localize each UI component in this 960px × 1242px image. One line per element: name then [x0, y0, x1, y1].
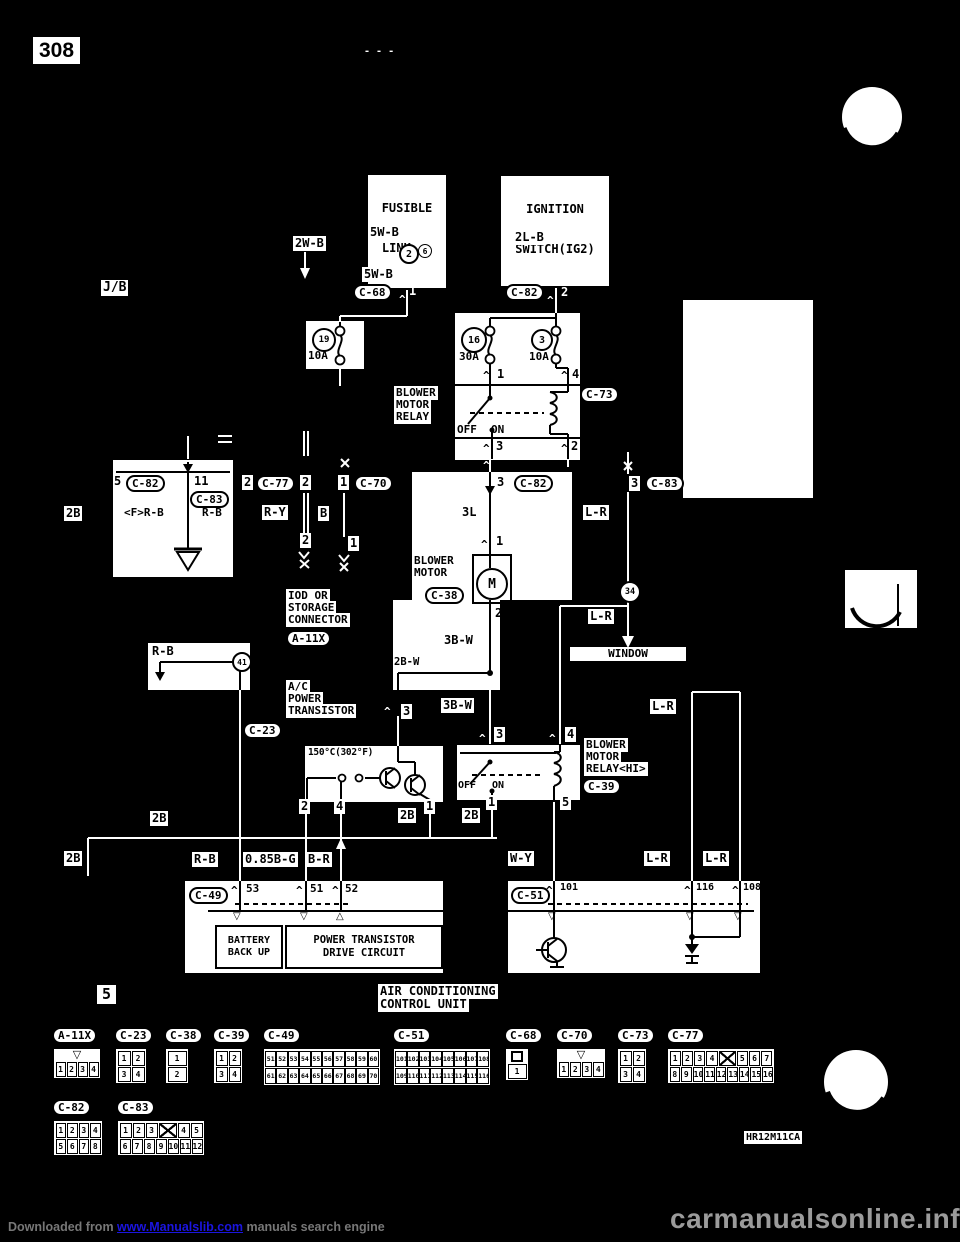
pin-chevron-icon: ^ — [483, 461, 490, 470]
pin-chevron-icon: ^ — [332, 886, 339, 895]
wiring-diagram-page: 308 - - - FUSIBLE LINK 6 IGNITION SWITCH… — [0, 0, 960, 1242]
pin-chevron-icon: ^ — [479, 734, 486, 743]
pin-chevron-icon: ^ — [231, 886, 238, 895]
pin-chevron-icon: ^ — [296, 886, 303, 895]
pin-chevron-icon: ^ — [483, 444, 490, 453]
pin-chevron-icon: ^ — [481, 540, 488, 549]
pin-chevron-icon: ^ — [549, 734, 556, 743]
pin-chevron-icon: ^ — [483, 371, 490, 380]
pin-chevron-icon: ^ — [732, 886, 739, 895]
symbol-layer — [0, 0, 960, 1242]
pin-chevron-icon: ^ — [399, 295, 406, 304]
pin-chevron-icon: ^ — [547, 296, 554, 305]
pin-chevron-icon: ^ — [684, 886, 691, 895]
pin-chevron-icon: ^ — [561, 371, 568, 380]
pin-chevron-icon: ^ — [546, 886, 553, 895]
pin-chevron-icon: ^ — [384, 707, 391, 716]
pin-chevron-icon: ^ — [561, 444, 568, 453]
